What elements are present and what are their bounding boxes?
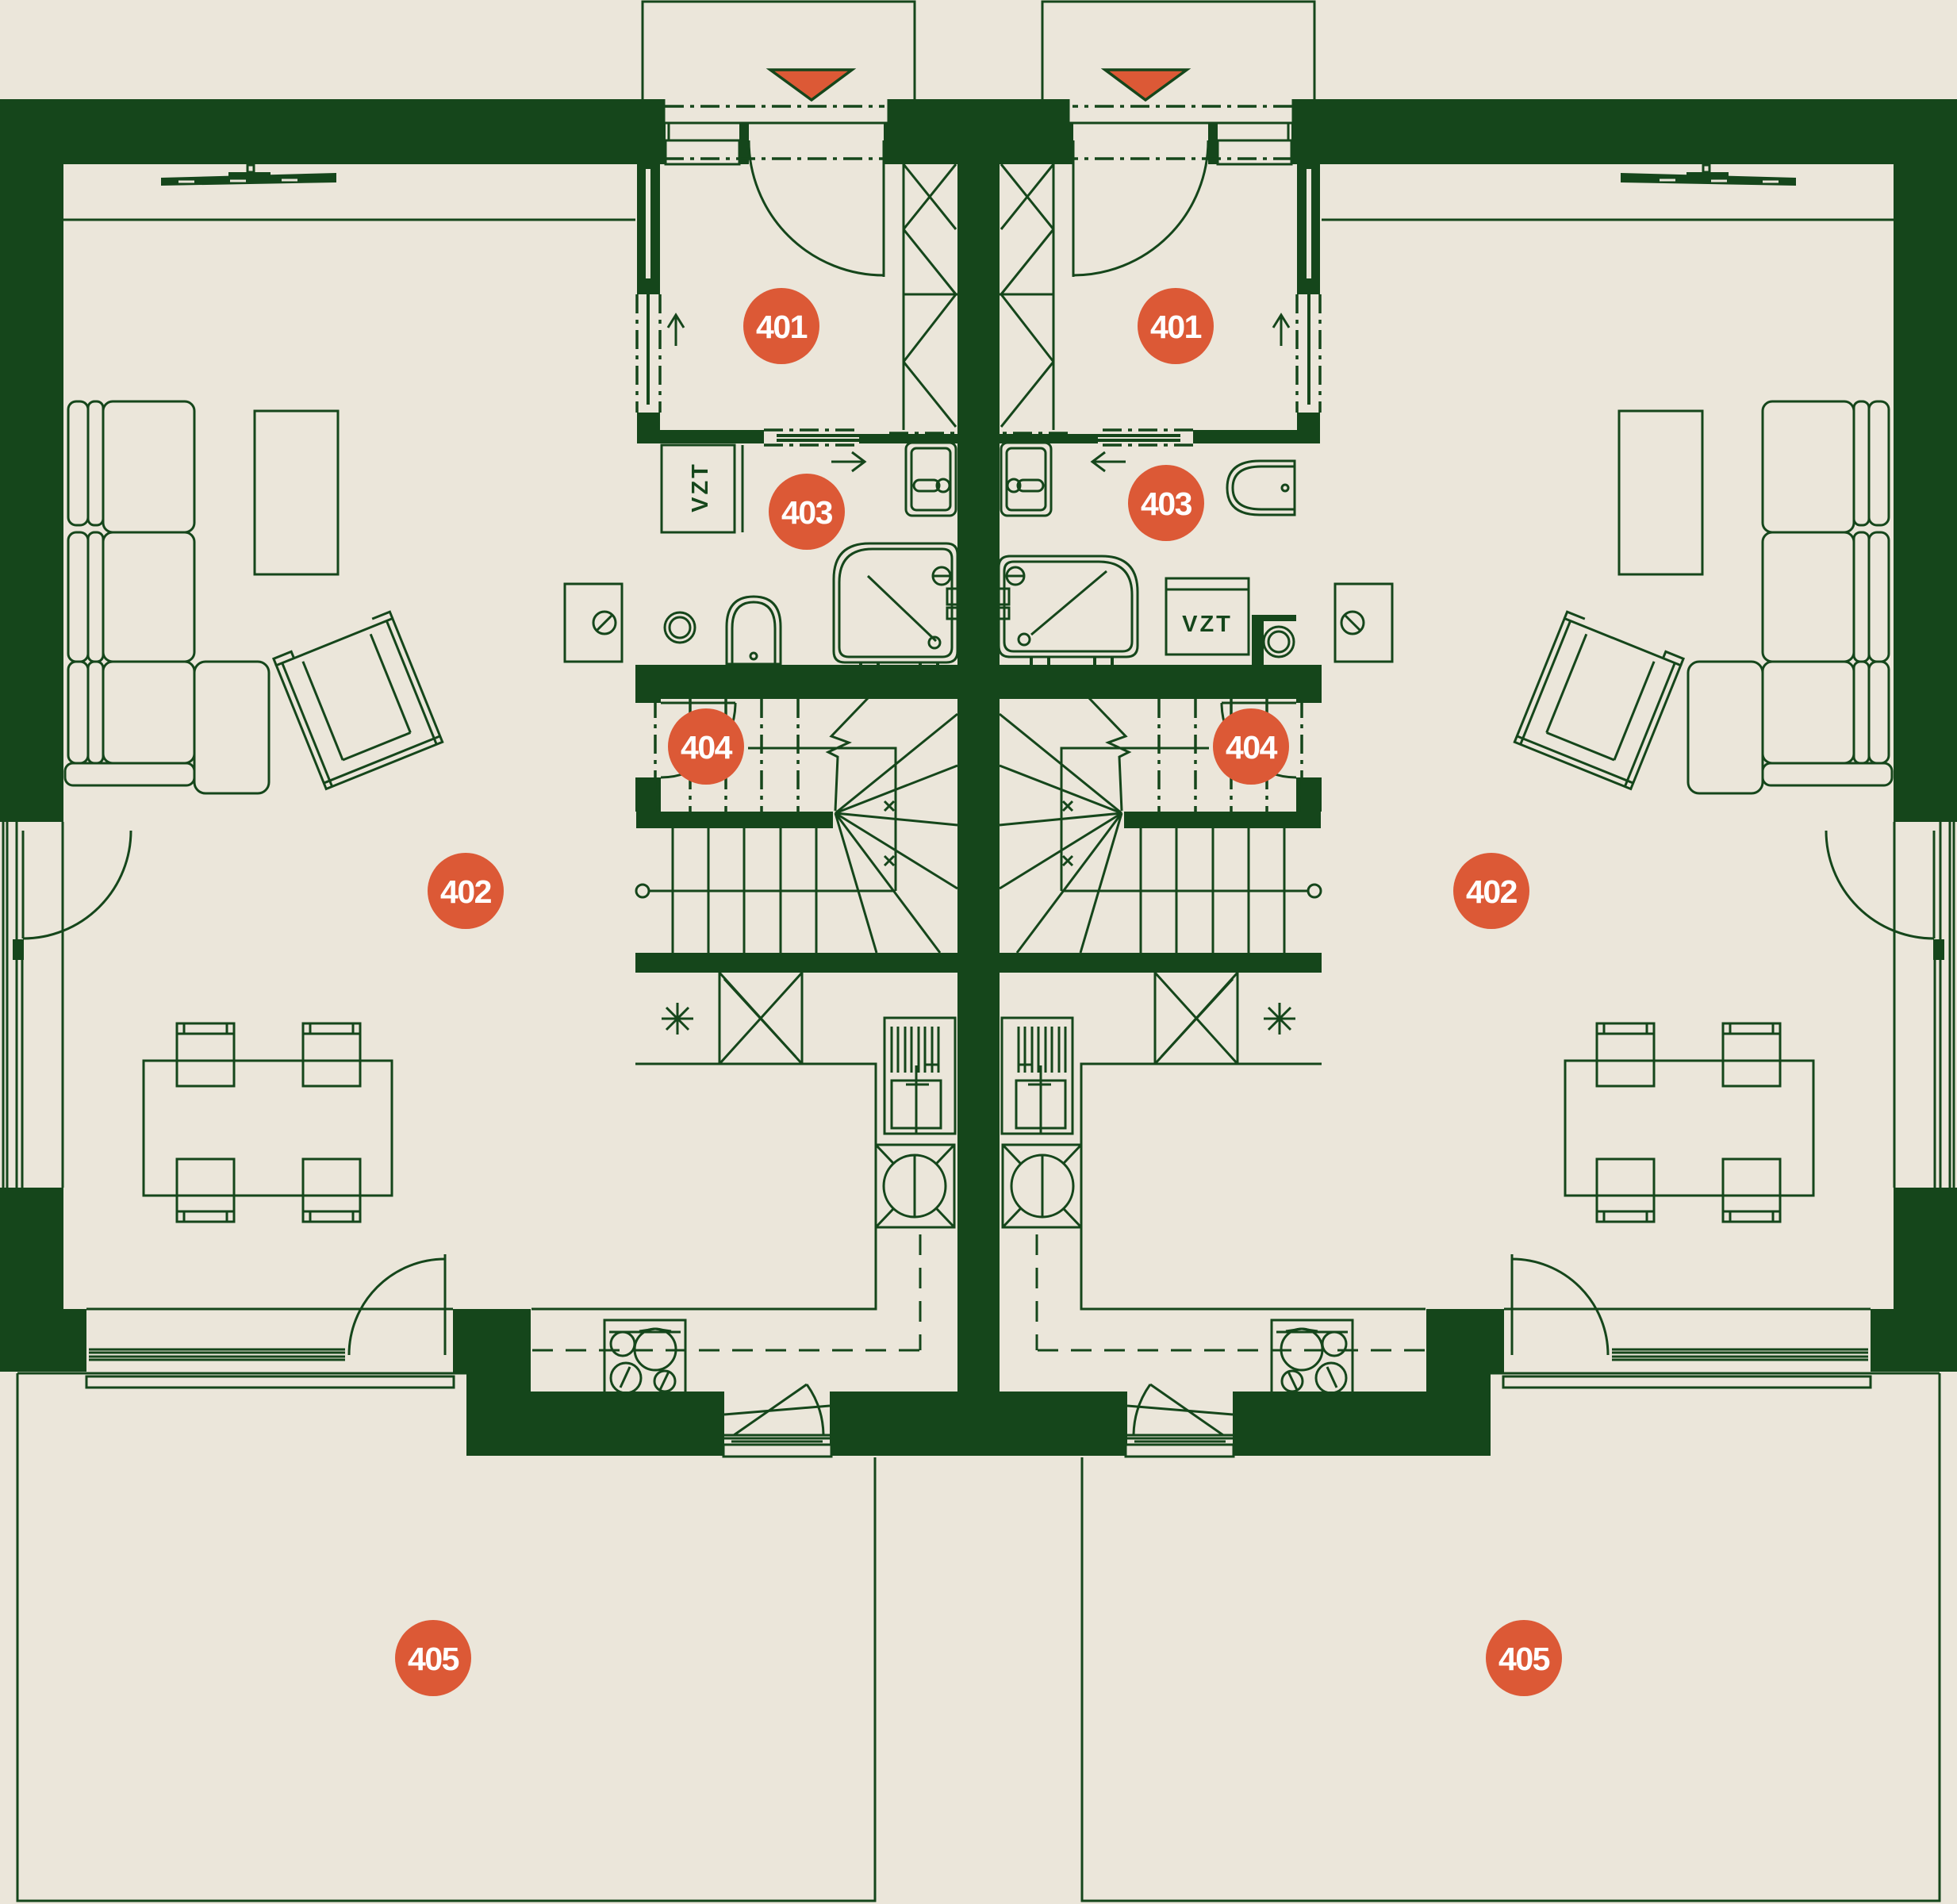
svg-text:401: 401 [1150, 309, 1202, 345]
svg-text:403: 403 [1141, 486, 1192, 522]
svg-text:405: 405 [1498, 1641, 1550, 1677]
svg-text:404: 404 [1226, 729, 1278, 766]
svg-text:402: 402 [440, 873, 492, 910]
svg-text:VZT: VZT [1182, 612, 1233, 637]
svg-text:403: 403 [781, 494, 833, 531]
svg-text:402: 402 [1466, 873, 1518, 910]
svg-text:404: 404 [681, 729, 733, 766]
svg-text:VZT: VZT [688, 462, 713, 512]
svg-text:405: 405 [408, 1641, 459, 1677]
svg-text:401: 401 [756, 309, 808, 345]
